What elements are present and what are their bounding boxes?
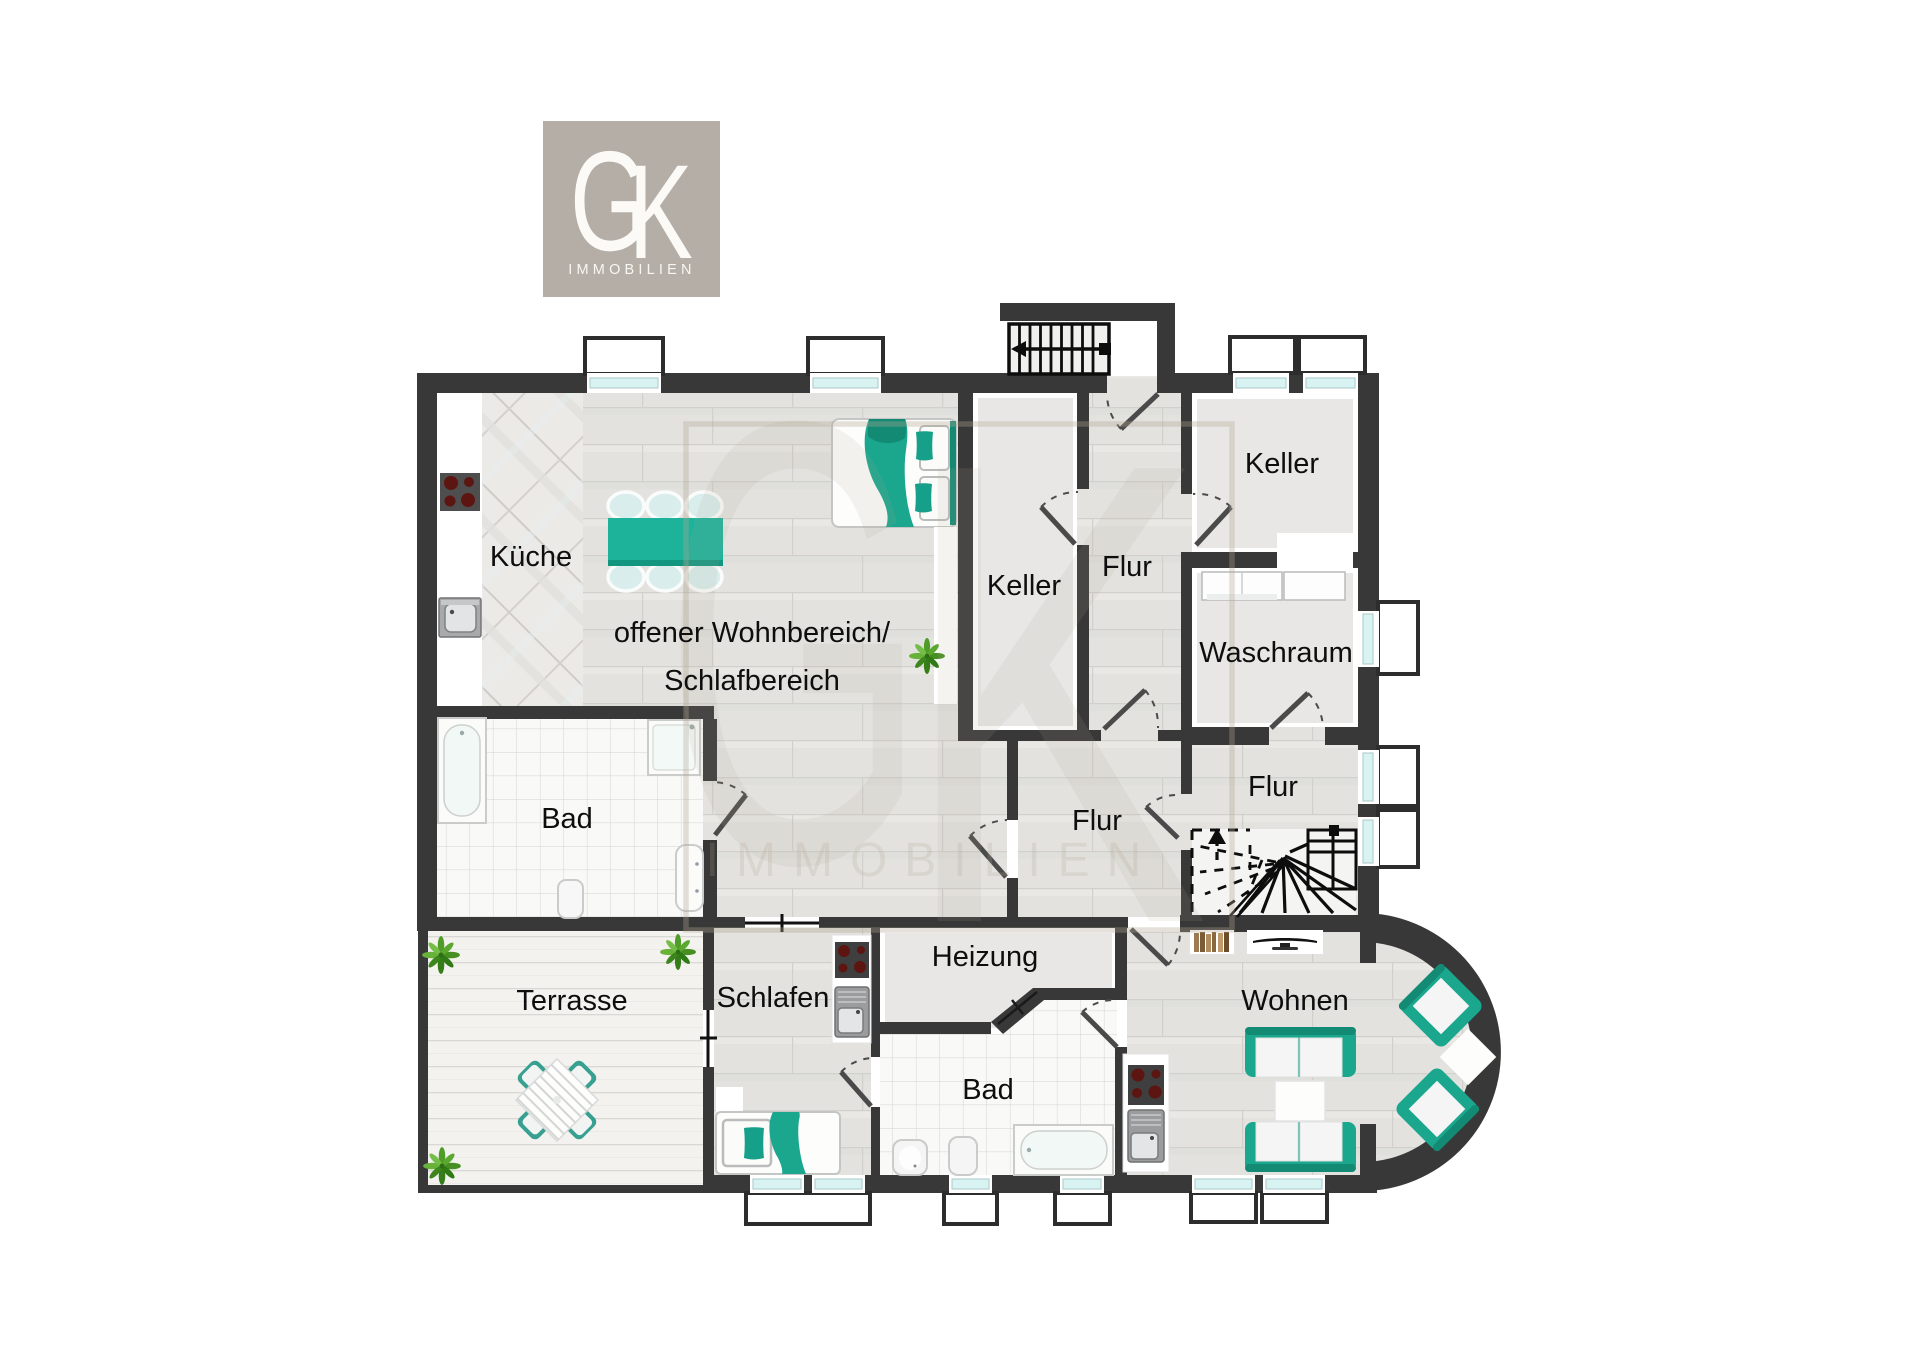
- svg-text:Keller: Keller: [987, 570, 1061, 602]
- svg-text:Küche: Küche: [490, 541, 572, 573]
- svg-text:Schlafen: Schlafen: [717, 982, 830, 1014]
- svg-text:Terrasse: Terrasse: [516, 985, 627, 1017]
- svg-text:Flur: Flur: [1072, 805, 1122, 837]
- svg-text:Heizung: Heizung: [932, 941, 1038, 973]
- svg-text:IMMOBILIEN: IMMOBILIEN: [706, 834, 1159, 887]
- svg-text:Schlafbereich: Schlafbereich: [664, 665, 840, 697]
- svg-text:Wohnen: Wohnen: [1241, 985, 1349, 1017]
- svg-text:Keller: Keller: [1245, 448, 1319, 480]
- svg-text:Bad: Bad: [962, 1074, 1014, 1106]
- svg-text:IMMOBILIEN: IMMOBILIEN: [568, 262, 695, 278]
- svg-text:Waschraum: Waschraum: [1199, 637, 1353, 669]
- svg-text:offener Wohnbereich/: offener Wohnbereich/: [614, 617, 891, 649]
- svg-text:Flur: Flur: [1102, 551, 1152, 583]
- svg-text:Flur: Flur: [1248, 771, 1298, 803]
- svg-text:Bad: Bad: [541, 803, 593, 835]
